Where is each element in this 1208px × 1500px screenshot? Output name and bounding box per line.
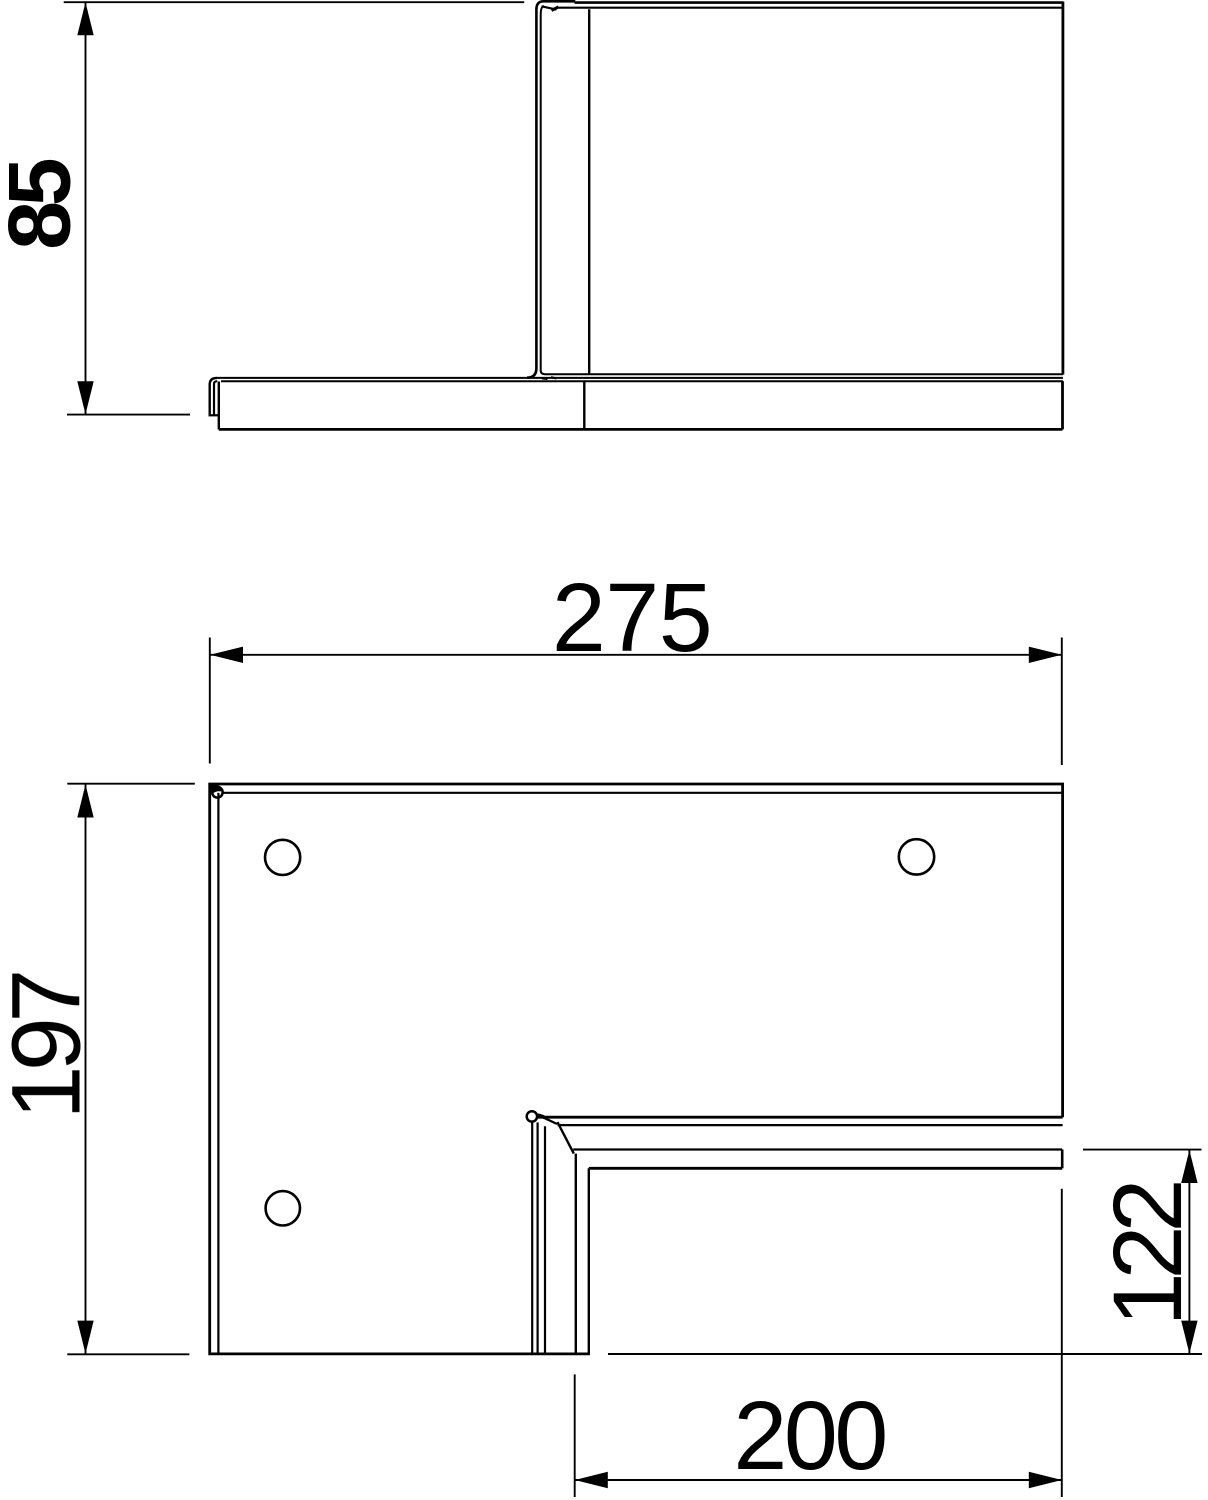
svg-text:275: 275 (552, 563, 712, 672)
svg-text:85: 85 (0, 159, 89, 249)
svg-text:122: 122 (1093, 1183, 1202, 1327)
svg-text:200: 200 (733, 1381, 885, 1490)
svg-text:197: 197 (0, 973, 101, 1120)
